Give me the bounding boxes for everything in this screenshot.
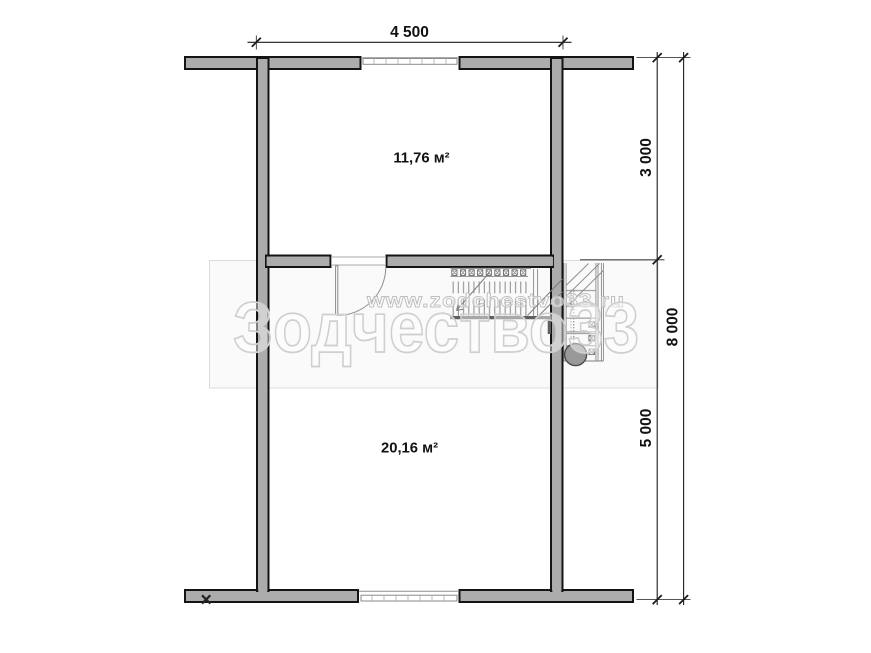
partition-wall-right-segment [387,256,554,268]
wall-junction-patch [267,257,270,266]
wall-junction-patch [550,257,553,266]
bottom-window [359,591,459,601]
floor-plan-canvas: www.zodchestvo33.ru Зодчество33 11,76 м²… [0,0,871,653]
right-dim-label-lower: 5 000 [638,409,655,448]
wall-junction-patch [552,589,561,593]
right-dim-label-upper: 3 000 [638,138,655,177]
top-dim-label: 4 500 [390,24,429,41]
top-wall-left-segment [185,57,361,69]
door-threshold [332,257,386,265]
room-area-label-lower: 20,16 м² [381,441,438,457]
top-window [361,58,459,65]
top-wall-right-segment [460,57,634,69]
partition-wall-left-segment [266,256,331,268]
watermark-brand: Зодчество33 [233,289,639,368]
watermark: www.zodchestvo33.ru Зодчество33 [233,289,639,368]
wall-junction-patch [258,589,267,593]
room-area-label-upper: 11,76 м² [393,151,449,167]
bottom-wall-right-segment [460,590,634,602]
right-dim-label-total: 8 000 [665,308,682,347]
wall-junction-patch [258,68,267,72]
wall-junction-patch [552,68,561,72]
window-frame [361,595,457,601]
